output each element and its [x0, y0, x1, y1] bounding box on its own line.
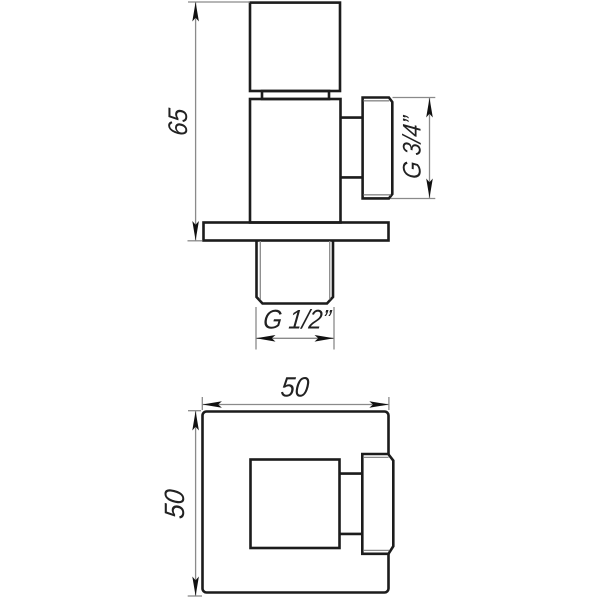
svg-text:65: 65	[162, 106, 193, 137]
svg-text:50: 50	[159, 488, 190, 521]
svg-text:G 3/4”: G 3/4”	[399, 114, 427, 180]
svg-text:G 1/2”: G 1/2”	[262, 304, 334, 335]
svg-text:50: 50	[279, 372, 311, 403]
